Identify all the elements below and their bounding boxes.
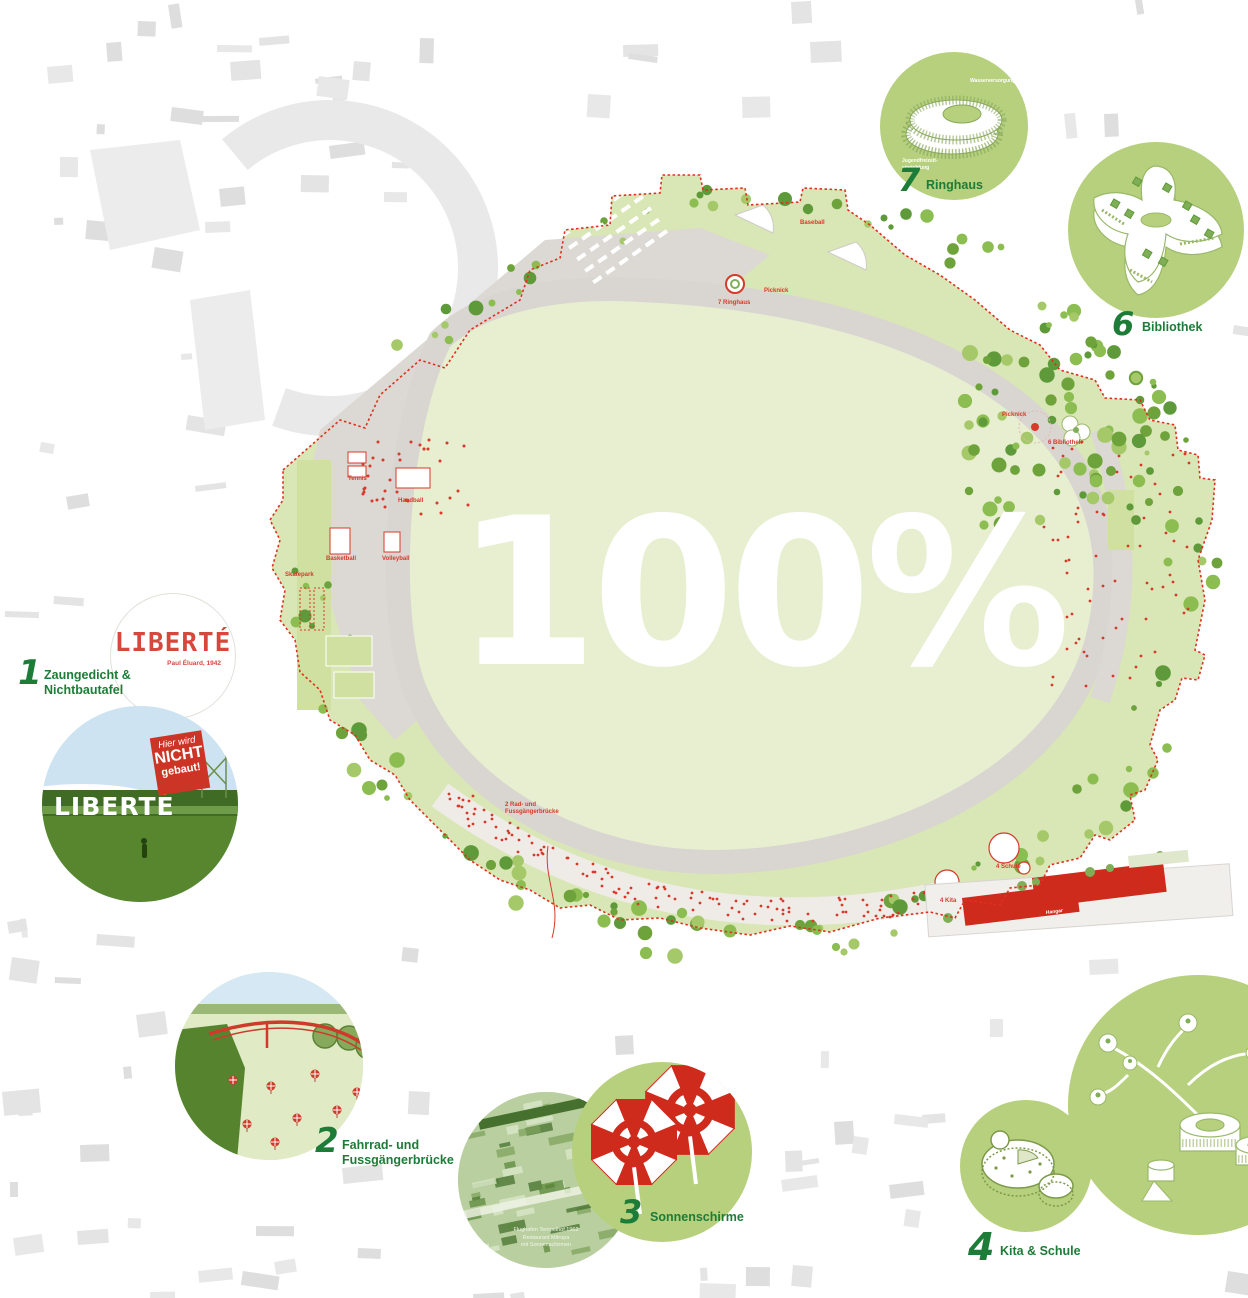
liberte-poem-circle: LIBERTÉ Paul Éluard, 1942: [110, 593, 236, 719]
callout-label-sonnenschirme: Sonnenschirme: [650, 1210, 744, 1225]
library-drawing: [1068, 142, 1244, 318]
map-label-picknick-b: Picknick: [1002, 412, 1027, 418]
protest-photo-circle: LIBERTÉ Hier wird NICHT gebaut!: [42, 706, 238, 902]
callout-number-6: 6: [1112, 308, 1134, 340]
map-label-volleyball: Volleyball: [382, 556, 410, 562]
callout-label-zaungedicht: Zaungedicht & Nichtbautafel: [44, 668, 131, 698]
map-label-tennis: Tennis: [348, 476, 368, 482]
callout-label-ringhaus: Ringhaus: [926, 178, 983, 193]
callout-label-bridge-l1: Fahrrad- und: [342, 1138, 419, 1152]
callout-number-7: 7: [898, 164, 920, 196]
aerial-caption-l2: Restaurant Mitropa: [458, 1235, 634, 1243]
aerial-caption-l3: mit Sonnenschirmen: [458, 1242, 634, 1250]
liberte-credit: Paul Éluard, 1942: [167, 660, 221, 667]
callout-number-2: 2: [315, 1124, 339, 1158]
callout-number-1: 1: [18, 656, 42, 690]
map-label-bridge-2: Fussgängerbrücke: [505, 809, 559, 815]
map-label-bibliothek: 6 Bibliothek: [1048, 440, 1083, 446]
map-label-ringhaus: 7 Ringhaus: [718, 300, 751, 306]
aerial-caption: Flughafen Tempelhof 1962 Restaurant Mitr…: [458, 1227, 634, 1250]
callout-label-zaungedicht-l2: Nichtbautafel: [44, 683, 123, 697]
ringhaus-annotation-top: Wasserversorgung: [970, 78, 1015, 84]
map-label-picknick-a: Picknick: [764, 288, 789, 294]
callout-label-bridge-l2: Fussgängerbrücke: [342, 1153, 454, 1167]
fence-liberte-text: LIBERTÉ: [54, 792, 238, 821]
callout-label-kita-schule: Kita & Schule: [1000, 1244, 1081, 1259]
map-label-kita: 4 Kita: [940, 898, 957, 904]
callout-number-4: 4: [968, 1228, 994, 1266]
callout-circle-kita-klein: [960, 1100, 1092, 1232]
map-label-bridge-1: 2 Rad- und: [505, 802, 536, 808]
map-label-skatepark: Skatepark: [285, 572, 314, 578]
callout-label-zaungedicht-l1: Zaungedicht &: [44, 668, 131, 682]
callout-number-3: 3: [620, 1196, 642, 1228]
poster-canvas: Tennis Handball Basketball Volleyball Sk…: [0, 0, 1248, 1298]
kita-drawing: [960, 1100, 1092, 1232]
ringhaus-marker: [726, 275, 744, 293]
headline-100-percent: 100%: [420, 492, 1100, 697]
map-label-schule: 4 Schule: [996, 864, 1021, 870]
map-label-basketball: Basketball: [326, 556, 356, 562]
aerial-caption-l1: Flughafen Tempelhof 1962: [458, 1227, 634, 1235]
callout-label-bridge: Fahrrad- und Fussgängerbrücke: [342, 1138, 454, 1168]
callout-circle-bibliothek: [1068, 142, 1244, 318]
map-label-baseball: Baseball: [800, 220, 825, 226]
callout-label-bibliothek: Bibliothek: [1142, 320, 1202, 335]
nicht-gebaut-sign: Hier wird NICHT gebaut!: [150, 730, 210, 795]
liberte-title: LIBERTÉ: [111, 628, 235, 658]
